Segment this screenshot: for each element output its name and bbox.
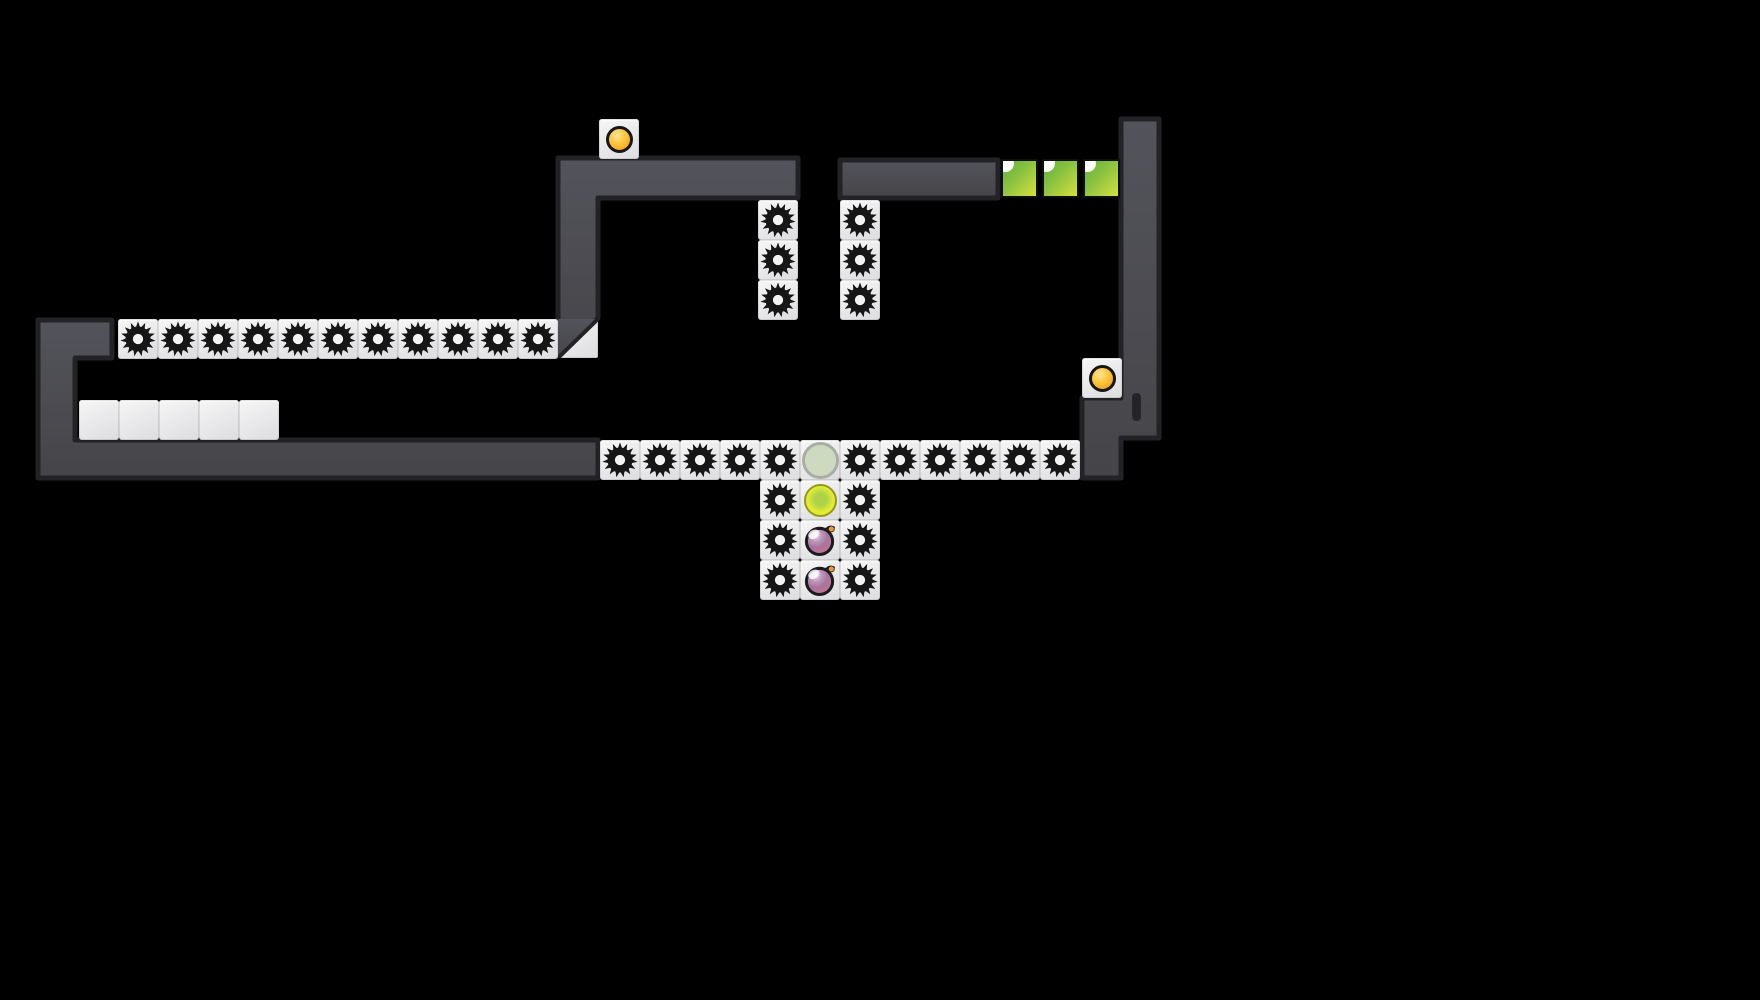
saw-tile (1000, 440, 1040, 480)
saw-blade-icon (1041, 441, 1079, 479)
corner-notch (1083, 159, 1096, 172)
saw-blade-icon (841, 481, 879, 519)
saw-tile (600, 440, 640, 480)
slope-wall-triangle (558, 319, 598, 358)
blank-tile (159, 400, 199, 440)
walls-layer (0, 0, 1760, 1000)
green-jelly-block[interactable] (1001, 159, 1038, 198)
saw-tile (840, 560, 880, 600)
coin-button-tile[interactable] (1082, 358, 1122, 398)
saw-tile (438, 319, 478, 359)
saw-blade-icon (159, 320, 197, 358)
saw-blade-icon (881, 441, 919, 479)
saw-tile (198, 319, 238, 359)
saw-tile (840, 200, 880, 240)
saw-tile (760, 480, 800, 520)
saw-tile (318, 319, 358, 359)
saw-blade-icon (199, 320, 237, 358)
saw-blade-icon (519, 320, 557, 358)
blank-tile (79, 400, 119, 440)
saw-tile (758, 240, 798, 280)
corner-notch (1001, 159, 1014, 172)
ghost-circle-icon (802, 442, 839, 479)
saw-blade-icon (761, 561, 799, 599)
saw-blade-icon (841, 441, 879, 479)
saw-tile (398, 319, 438, 359)
saw-blade-icon (841, 561, 879, 599)
slope-tile (558, 319, 598, 358)
saw-blade-icon (439, 320, 477, 358)
saw-tile (358, 319, 398, 359)
saw-blade-icon (841, 281, 879, 319)
blank-tile (199, 400, 239, 440)
saw-blade-icon (759, 201, 797, 239)
saw-tile (720, 440, 760, 480)
saw-blade-icon (1001, 441, 1039, 479)
saw-blade-icon (759, 281, 797, 319)
green-jelly-block[interactable] (1042, 159, 1079, 198)
saw-blade-icon (921, 441, 959, 479)
saw-tile (518, 319, 558, 359)
saw-blade-icon (681, 441, 719, 479)
plum-fruit-tile[interactable] (800, 520, 840, 560)
saw-tile (840, 280, 880, 320)
saw-tile (960, 440, 1000, 480)
saw-blade-icon (841, 201, 879, 239)
saw-tile (760, 440, 800, 480)
saw-blade-icon (279, 320, 317, 358)
upper-right-platform (840, 160, 998, 198)
saw-tile (880, 440, 920, 480)
saw-tile (760, 560, 800, 600)
saw-tile (760, 520, 800, 560)
green-jelly-block[interactable] (1083, 159, 1120, 198)
coin-icon (606, 126, 633, 153)
saw-blade-icon (721, 441, 759, 479)
saw-tile (758, 200, 798, 240)
corner-notch (1042, 159, 1055, 172)
saw-blade-icon (759, 241, 797, 279)
saw-blade-icon (601, 441, 639, 479)
saw-tile (478, 319, 518, 359)
plum-icon (801, 521, 839, 559)
saw-tile (840, 520, 880, 560)
saw-tile (920, 440, 960, 480)
ghost-slot-tile (800, 440, 840, 480)
saw-blade-icon (319, 320, 357, 358)
saw-blade-icon (761, 441, 799, 479)
saw-tile (640, 440, 680, 480)
yellow-fruit-tile[interactable] (800, 480, 840, 520)
saw-blade-icon (399, 320, 437, 358)
saw-tile (840, 240, 880, 280)
saw-tile (238, 319, 278, 359)
saw-blade-icon (841, 241, 879, 279)
plum-fruit-tile[interactable] (800, 560, 840, 600)
saw-tile (1040, 440, 1080, 480)
saw-blade-icon (841, 521, 879, 559)
saw-blade-icon (119, 320, 157, 358)
saw-blade-icon (359, 320, 397, 358)
game-stage[interactable] (0, 0, 1760, 1000)
saw-blade-icon (961, 441, 999, 479)
saw-blade-icon (761, 521, 799, 559)
blank-tile (239, 400, 279, 440)
blank-tile (119, 400, 159, 440)
yellow-fruit-icon (804, 484, 837, 517)
saw-tile (118, 319, 158, 359)
coin-icon (1089, 365, 1116, 392)
wall-slot-notch (1133, 394, 1140, 420)
coin-button-tile[interactable] (599, 119, 639, 159)
saw-tile (840, 480, 880, 520)
saw-tile (758, 280, 798, 320)
saw-blade-icon (479, 320, 517, 358)
saw-blade-icon (641, 441, 679, 479)
saw-tile (278, 319, 318, 359)
plum-icon (801, 561, 839, 599)
saw-tile (680, 440, 720, 480)
saw-tile (840, 440, 880, 480)
saw-tile (158, 319, 198, 359)
saw-blade-icon (239, 320, 277, 358)
saw-blade-icon (761, 481, 799, 519)
